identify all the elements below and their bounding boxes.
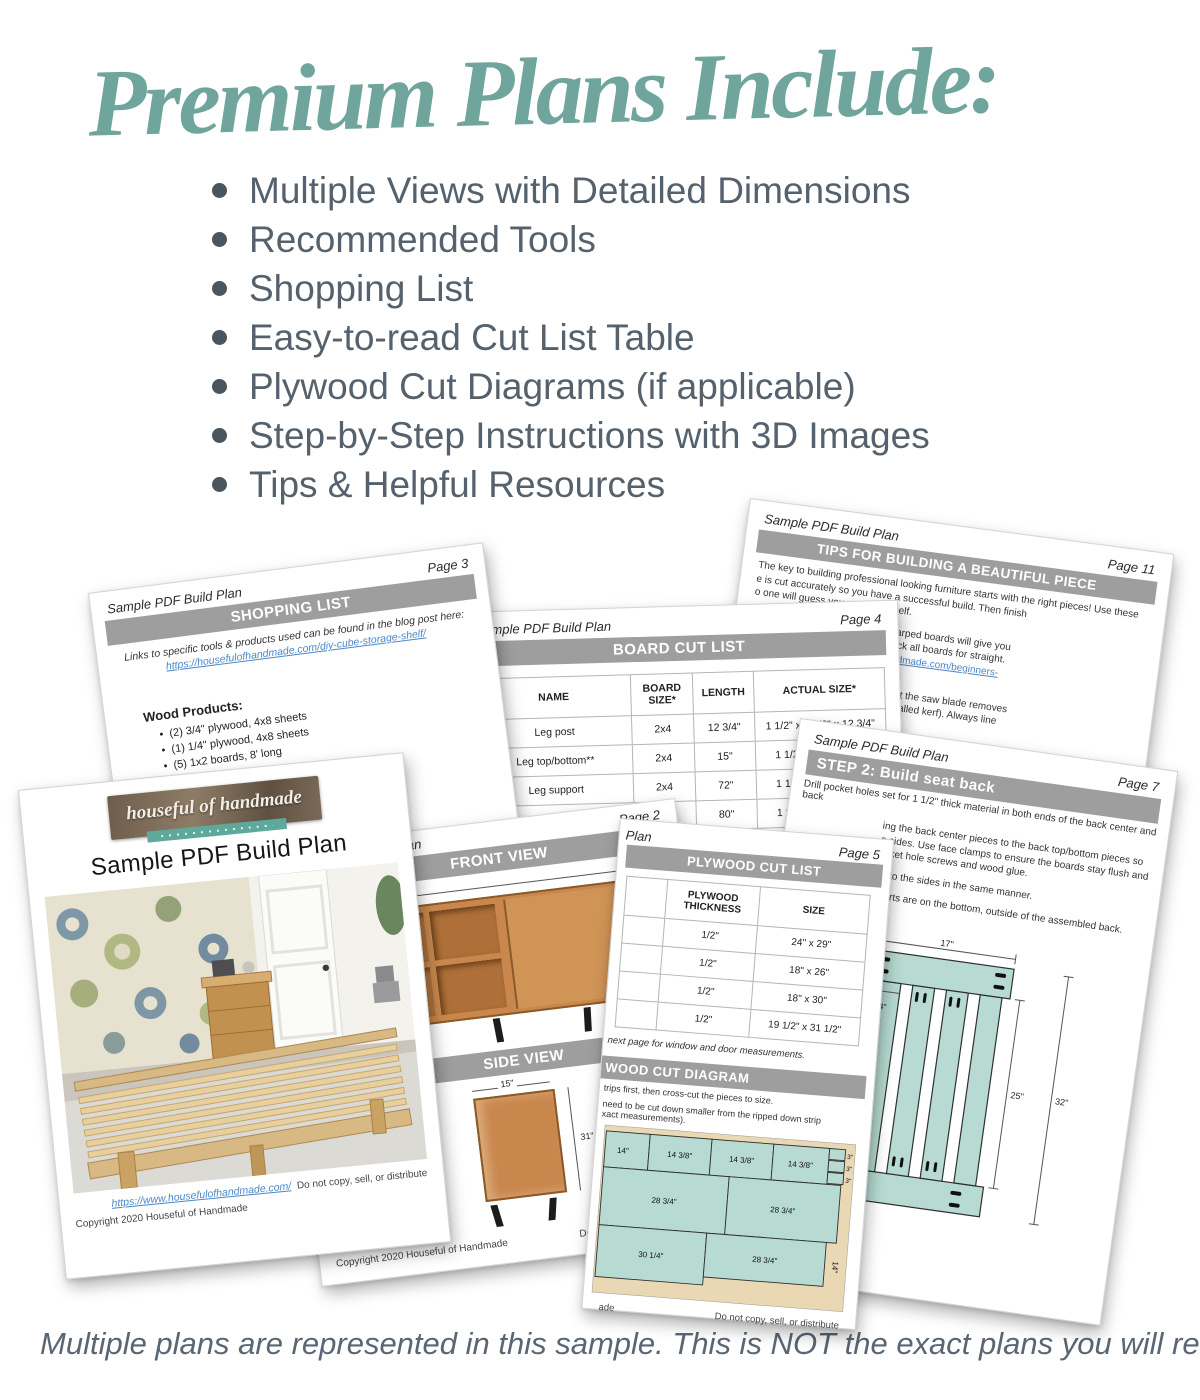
list-item-label: Plywood Cut Diagrams (if applicable) <box>249 366 856 408</box>
svg-text:14": 14" <box>830 1261 840 1274</box>
svg-text:28 3/4": 28 3/4" <box>651 1196 677 1207</box>
page-title: Premium Plans Include: <box>87 20 1130 158</box>
list-item: Multiple Views with Detailed Dimensions <box>212 166 1032 215</box>
svg-text:32": 32" <box>1054 1096 1068 1108</box>
dimension-label: 15" <box>497 1077 517 1089</box>
list-item: Plywood Cut Diagrams (if applicable) <box>212 362 1032 411</box>
svg-text:25": 25" <box>1010 1090 1024 1102</box>
plywood-cut-table: PLYWOOD THICKNESS SIZE 1/2"24" x 29" 1/2… <box>615 876 871 1047</box>
svg-text:14 3/8": 14 3/8" <box>787 1159 813 1170</box>
list-item-label: Easy-to-read Cut List Table <box>249 317 695 359</box>
page-header-title: Sample PDF Build Plan <box>475 619 611 638</box>
list-item: Tips & Helpful Resources <box>212 460 1032 509</box>
svg-text:14 3/8": 14 3/8" <box>667 1150 693 1161</box>
bullet-icon <box>212 183 227 198</box>
bullet-icon <box>212 379 227 394</box>
list-item-label: Shopping List <box>249 268 473 310</box>
list-item-label: Recommended Tools <box>249 219 596 261</box>
svg-text:14": 14" <box>617 1146 630 1156</box>
dimension-label: 31" <box>580 1130 594 1142</box>
bullet-icon <box>212 330 227 345</box>
page-number: Page 7 <box>1117 774 1160 795</box>
list-item-label: Step-by-Step Instructions with 3D Images <box>249 415 930 457</box>
list-item: Shopping List <box>212 264 1032 313</box>
svg-text:28 3/4": 28 3/4" <box>770 1205 796 1216</box>
svg-text:17": 17" <box>940 938 954 950</box>
page-number: Page 4 <box>840 611 882 627</box>
svg-text:28 3/4": 28 3/4" <box>752 1255 778 1266</box>
bullet-icon <box>212 428 227 443</box>
list-item: Step-by-Step Instructions with 3D Images <box>212 411 1032 460</box>
list-item-label: Multiple Views with Detailed Dimensions <box>249 170 910 212</box>
feature-list: Multiple Views with Detailed Dimensions … <box>212 166 1032 509</box>
bullet-icon <box>212 232 227 247</box>
page-header-title: Plan <box>625 828 652 845</box>
cabinet-side <box>473 1089 567 1202</box>
page-number: Page 5 <box>838 844 880 862</box>
sample-cover-page: houseful of handmade Sample PDF Build Pl… <box>18 752 451 1279</box>
bullet-icon <box>212 281 227 296</box>
bullet-icon <box>212 477 227 492</box>
disclaimer-note: Multiple plans are represented in this s… <box>40 1326 1160 1362</box>
sample-page-plywood: PlanPage 5 PLYWOOD CUT LIST PLYWOOD THIC… <box>581 818 894 1330</box>
copyright-fragment: ade <box>598 1302 615 1314</box>
page-number: Page 11 <box>1107 556 1156 577</box>
svg-text:14 3/8": 14 3/8" <box>729 1155 755 1166</box>
page-number: Page 3 <box>426 555 469 575</box>
list-item-label: Tips & Helpful Resources <box>249 464 665 506</box>
svg-text:30 1/4": 30 1/4" <box>638 1250 664 1261</box>
list-item: Easy-to-read Cut List Table <box>212 313 1032 362</box>
cover-photo <box>45 862 427 1193</box>
list-item: Recommended Tools <box>212 215 1032 264</box>
plywood-cut-diagram: 14" 14 3/8" 14 3/8" 14 3/8" 3" 3" 3" 28 … <box>592 1125 856 1312</box>
